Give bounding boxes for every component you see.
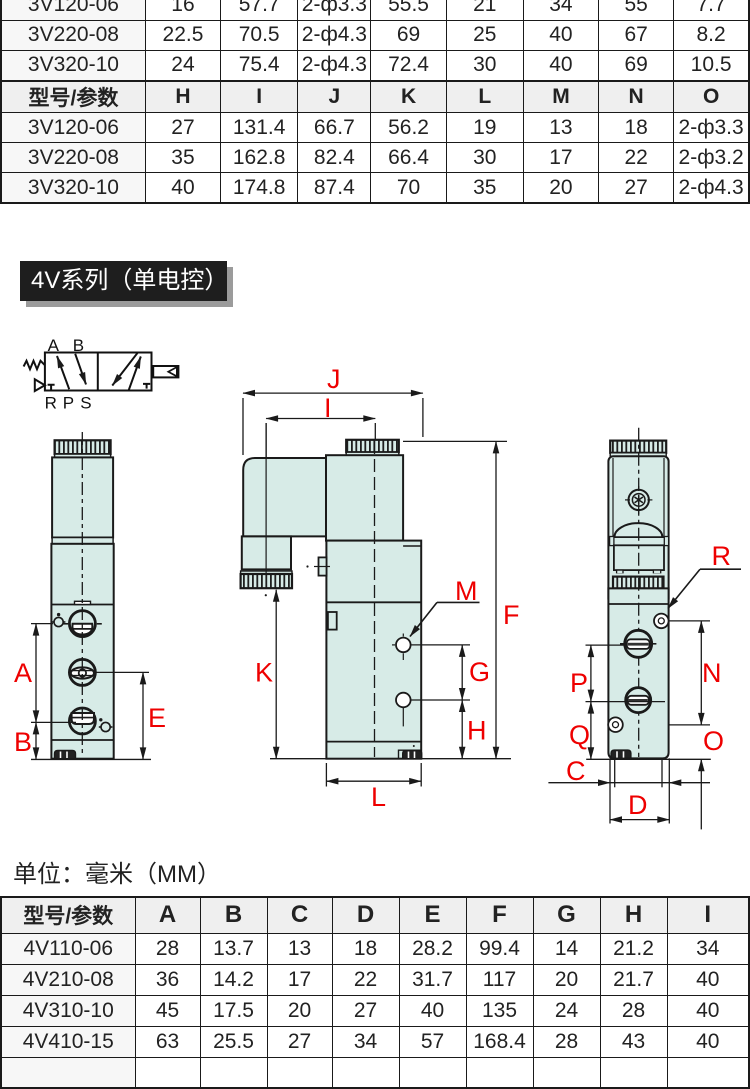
svg-text:P: P [570,668,588,698]
svg-text:P: P [63,394,74,413]
svg-text:A: A [14,658,32,688]
svg-text:J: J [327,364,341,394]
svg-text:R: R [45,394,57,413]
svg-text:M: M [455,576,478,606]
svg-text:B: B [14,727,32,757]
svg-text:H: H [467,716,487,746]
svg-text:L: L [371,782,386,812]
svg-text:F: F [503,600,520,630]
svg-text:K: K [255,658,273,688]
svg-text:O: O [703,726,724,756]
svg-text:R: R [712,541,732,571]
svg-text:E: E [148,703,166,733]
svg-text:S: S [80,394,91,413]
svg-text:G: G [469,657,490,687]
svg-text:I: I [324,393,332,423]
svg-text:C: C [566,756,586,786]
svg-text:D: D [628,790,648,820]
svg-text:N: N [702,658,722,688]
svg-text:Q: Q [569,720,590,750]
